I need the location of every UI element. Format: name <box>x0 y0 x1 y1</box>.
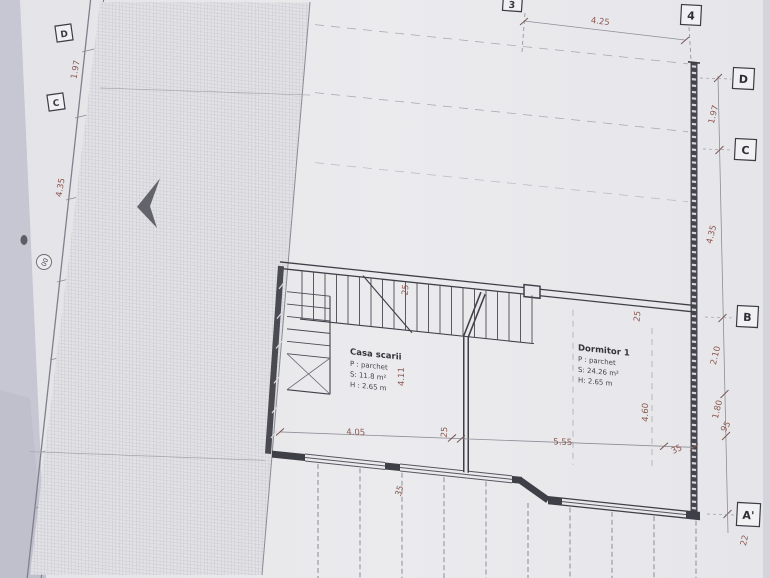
dim-top-span: 4.25 <box>590 16 610 28</box>
floor-plan-scan: D C 00 1.97 4.35 3 4 4.25 D <box>0 0 770 578</box>
grid-marker-d: D <box>739 73 749 86</box>
dim-bottom-2: 25 <box>440 426 450 438</box>
grid-marker-c: C <box>741 144 750 157</box>
paper-right-edge <box>763 0 770 578</box>
dim-wall-top: 25 <box>633 310 644 323</box>
grid-marker-a-prime: A' <box>742 509 755 523</box>
grid-marker-b: B <box>743 311 752 324</box>
binder-hole <box>21 235 28 245</box>
grid-marker-left-d: D <box>60 30 69 41</box>
dim-stair-width: 25 <box>401 284 412 297</box>
grid-marker-3: 3 <box>508 0 515 11</box>
grid-marker-4: 4 <box>687 9 696 22</box>
dim-bottom-1: 4.05 <box>346 428 366 439</box>
dim-casa-depth: 4.11 <box>397 367 407 387</box>
dim-dormitor-depth: 4.60 <box>641 402 651 422</box>
dim-bottom-3: 5.55 <box>553 437 573 448</box>
